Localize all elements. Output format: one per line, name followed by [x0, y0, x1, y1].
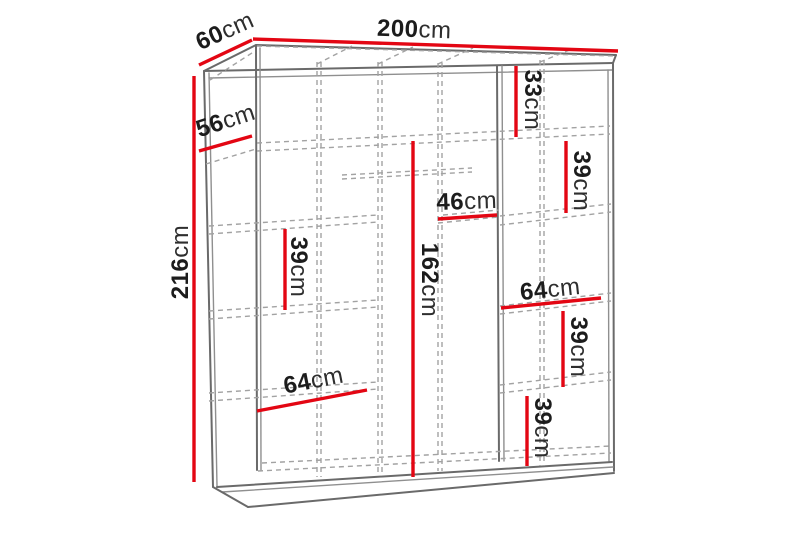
right-outer-edge [613, 63, 614, 471]
floor-back-edge [262, 446, 611, 463]
dim-label-right-bottom-39: 39cm [529, 398, 556, 459]
left-shelf-3-back [209, 300, 378, 311]
dim-label-hanging-162: 162cm [416, 243, 443, 318]
top-shelf-front [257, 134, 610, 151]
top-right-corner-edge [613, 55, 616, 63]
top-panel-underside-edge [209, 70, 612, 78]
left-shelf-3-front [209, 307, 378, 319]
right-shelf-d-back [500, 372, 611, 385]
dim-label-right-top-33: 33cm [519, 70, 546, 131]
back-left-corner-edge-2 [260, 48, 261, 470]
top-front-edge [204, 63, 613, 71]
dim-label-width-200: 200cm [377, 15, 452, 45]
hanging-rod-back [342, 172, 472, 179]
dim-label-height-216: 216cm [167, 225, 194, 300]
wardrobe-dimension-figure: 200cm 60cm 216cm 56cm 33cm 39cm 46cm 162… [0, 0, 800, 533]
dim-label-left-bottom-64: 64cm [281, 362, 346, 400]
floor-front-edge [258, 453, 611, 471]
right-inner-edge [608, 70, 609, 462]
center-partition-edge [497, 66, 499, 461]
back-left-corner-edge [256, 46, 257, 470]
center-partition-edge-2 [502, 66, 504, 461]
hanging-rod-front [342, 168, 472, 175]
right-shelf-d-front [500, 380, 611, 393]
right-shelf-b-front [500, 212, 611, 225]
dim-label-right-upper-39: 39cm [568, 151, 595, 212]
dim-label-middle-46: 46cm [436, 187, 498, 216]
left-shelf-2-back [209, 215, 378, 226]
dim-label-right-middle-39: 39cm [565, 317, 592, 378]
divider-1-top-depth [317, 46, 352, 64]
top-shelf-back [257, 126, 610, 143]
wardrobe-diagram-canvas: 200cm 60cm 216cm 56cm 33cm 39cm 46cm 162… [0, 0, 800, 533]
left-shelf-2-front [209, 222, 378, 234]
top-shelf-depth-edge [206, 149, 256, 164]
dim-label-left-39: 39cm [285, 237, 312, 298]
